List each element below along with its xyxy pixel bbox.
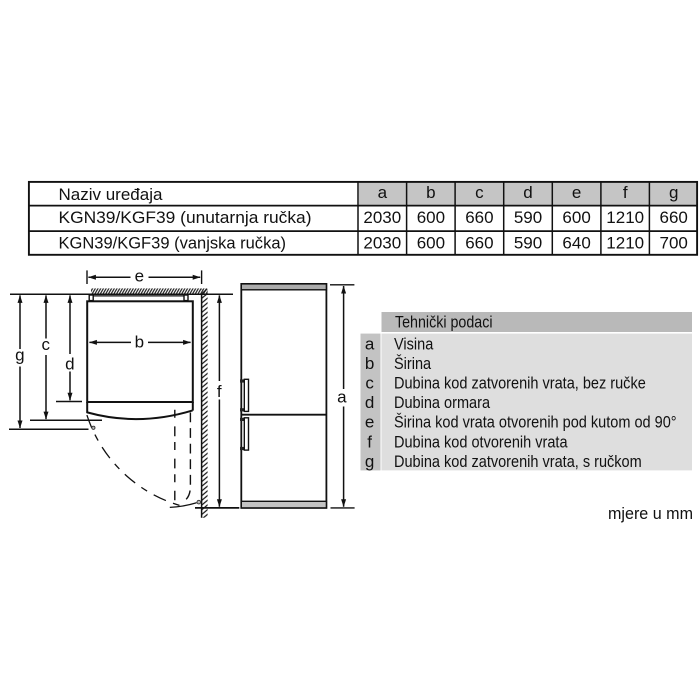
svg-text:640: 640: [562, 234, 590, 253]
svg-text:1210: 1210: [606, 208, 644, 227]
svg-text:g: g: [669, 183, 678, 202]
svg-text:d: d: [523, 183, 532, 202]
svg-text:Tehnički podaci: Tehnički podaci: [395, 313, 493, 332]
svg-text:Dubina kod otvorenih vrata: Dubina kod otvorenih vrata: [394, 433, 568, 451]
svg-text:600: 600: [417, 234, 445, 253]
svg-text:600: 600: [417, 208, 445, 227]
svg-text:590: 590: [514, 208, 542, 227]
svg-text:d: d: [65, 355, 74, 374]
svg-text:a: a: [365, 335, 375, 354]
svg-text:b: b: [426, 183, 435, 202]
svg-text:Dubina kod zatvorenih vrata, s: Dubina kod zatvorenih vrata, s ručkom: [394, 453, 642, 471]
svg-text:mjere u mm: mjere u mm: [608, 504, 693, 523]
svg-text:590: 590: [514, 234, 542, 253]
svg-text:Širina kod vrata otvorenih pod: Širina kod vrata otvorenih pod kutom od …: [394, 412, 677, 432]
svg-text:g: g: [365, 452, 374, 471]
svg-text:660: 660: [465, 208, 493, 227]
svg-text:700: 700: [660, 234, 688, 253]
svg-text:a: a: [378, 183, 388, 202]
svg-text:c: c: [365, 374, 374, 393]
svg-text:2030: 2030: [363, 208, 401, 227]
svg-text:Naziv uređaja: Naziv uređaja: [59, 185, 163, 204]
svg-text:1210: 1210: [606, 234, 644, 253]
svg-text:b: b: [135, 333, 144, 352]
svg-text:f: f: [367, 432, 372, 451]
svg-text:Dubina ormara: Dubina ormara: [394, 394, 490, 412]
svg-text:Širina: Širina: [394, 353, 431, 373]
svg-text:c: c: [42, 335, 51, 354]
svg-text:b: b: [365, 354, 374, 373]
svg-text:d: d: [365, 393, 374, 412]
svg-text:KGN39/KGF39 (unutarnja ručka): KGN39/KGF39 (unutarnja ručka): [59, 208, 312, 227]
svg-text:g: g: [15, 346, 24, 365]
svg-text:KGN39/KGF39 (vanjska ručka): KGN39/KGF39 (vanjska ručka): [59, 234, 287, 253]
svg-text:e: e: [572, 183, 581, 202]
svg-text:c: c: [475, 183, 484, 202]
svg-text:e: e: [135, 267, 144, 286]
svg-text:e: e: [365, 413, 374, 432]
svg-text:2030: 2030: [363, 234, 401, 253]
svg-text:Dubina kod zatvorenih vrata, b: Dubina kod zatvorenih vrata, bez ručke: [394, 375, 646, 393]
svg-text:Visina: Visina: [394, 336, 433, 354]
svg-text:600: 600: [562, 208, 590, 227]
svg-text:f: f: [217, 382, 222, 401]
svg-text:f: f: [623, 183, 628, 202]
svg-text:660: 660: [660, 208, 688, 227]
svg-text:a: a: [337, 388, 347, 407]
svg-text:660: 660: [465, 234, 493, 253]
